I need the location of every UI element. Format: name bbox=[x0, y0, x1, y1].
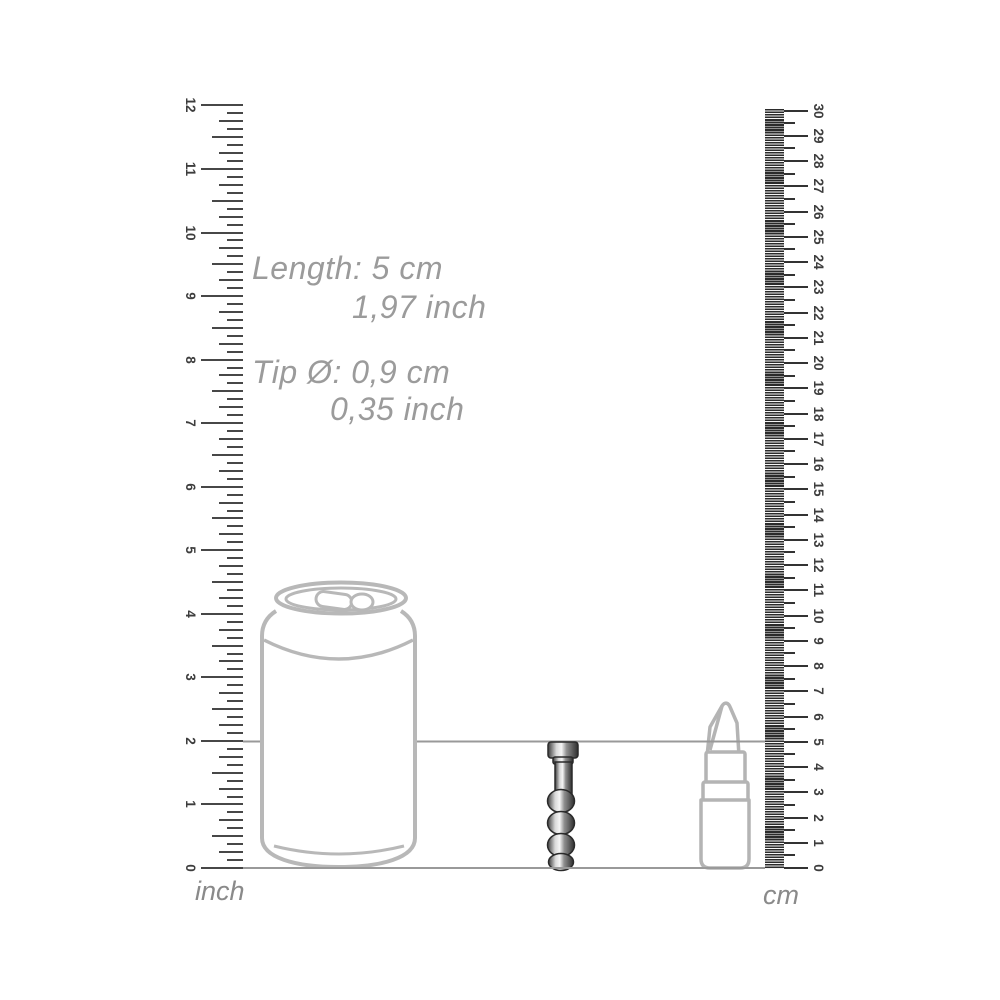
inch-unit-label: inch bbox=[195, 878, 245, 905]
cm-ruler-number: 15 bbox=[806, 477, 830, 501]
inch-ruler-tick bbox=[227, 319, 243, 321]
cm-ruler-tick bbox=[765, 791, 808, 793]
inch-ruler-tick bbox=[227, 382, 243, 384]
cm-ruler-tick bbox=[765, 261, 808, 263]
cm-ruler-tick bbox=[765, 640, 808, 642]
inch-ruler-tick bbox=[201, 613, 243, 615]
inch-ruler-tick bbox=[227, 589, 243, 591]
cm-ruler-tick bbox=[765, 678, 795, 680]
cm-ruler-number: 12 bbox=[806, 553, 830, 577]
cm-ruler-tick bbox=[765, 375, 795, 377]
length-annotation-metric: Length: 5 cm bbox=[252, 252, 443, 284]
cm-ruler-number: 19 bbox=[806, 376, 830, 400]
cm-ruler-tick bbox=[765, 488, 808, 490]
inch-ruler-tick bbox=[227, 700, 243, 702]
inch-ruler-tick bbox=[219, 438, 243, 440]
inch-ruler-tick bbox=[227, 398, 243, 400]
cm-ruler-number: 16 bbox=[806, 452, 830, 476]
cm-ruler-number: 21 bbox=[806, 326, 830, 350]
cm-ruler-tick bbox=[765, 652, 795, 654]
cm-ruler-number: 1 bbox=[806, 831, 830, 855]
cm-ruler-number: 30 bbox=[806, 99, 830, 123]
cm-ruler-number: 13 bbox=[806, 528, 830, 552]
inch-ruler-tick bbox=[212, 136, 243, 138]
cm-ruler-number: 2 bbox=[806, 806, 830, 830]
cm-ruler-tick bbox=[765, 438, 808, 440]
inch-ruler-number: 12 bbox=[178, 93, 202, 117]
inch-ruler-tick bbox=[227, 430, 243, 432]
inch-ruler-tick bbox=[201, 422, 243, 424]
cm-ruler-number: 6 bbox=[806, 705, 830, 729]
inch-ruler-tick bbox=[227, 796, 243, 798]
inch-ruler-tick bbox=[219, 470, 243, 472]
inch-ruler-tick bbox=[227, 414, 243, 416]
size-guide-diagram: 0123456789101112 01234567891011121314151… bbox=[0, 0, 1000, 1000]
inch-ruler-number: 4 bbox=[178, 602, 202, 626]
inch-ruler-tick bbox=[227, 653, 243, 655]
inch-ruler-tick bbox=[212, 835, 243, 837]
inch-ruler-tick bbox=[201, 803, 243, 805]
cm-ruler-tick bbox=[765, 577, 795, 579]
inch-ruler-tick bbox=[227, 637, 243, 639]
inch-ruler-tick bbox=[219, 819, 243, 821]
cm-ruler-tick bbox=[765, 173, 795, 175]
inch-ruler-tick bbox=[219, 406, 243, 408]
inch-ruler-tick bbox=[227, 192, 243, 194]
cm-ruler-tick bbox=[765, 564, 808, 566]
inch-ruler-tick bbox=[227, 716, 243, 718]
inch-ruler-tick bbox=[212, 327, 243, 329]
cm-ruler-number: 26 bbox=[806, 200, 830, 224]
inch-ruler-tick bbox=[227, 827, 243, 829]
cm-ruler-tick bbox=[765, 779, 795, 781]
cm-ruler-number: 20 bbox=[806, 351, 830, 375]
cm-ruler-number: 5 bbox=[806, 730, 830, 754]
cm-ruler-tick bbox=[765, 450, 795, 452]
inch-ruler-number: 6 bbox=[178, 475, 202, 499]
cm-ruler-tick bbox=[765, 817, 808, 819]
can-pull-tab-icon bbox=[315, 591, 373, 611]
inch-ruler-number: 11 bbox=[178, 157, 202, 181]
cm-ruler-tick bbox=[765, 236, 808, 238]
inch-ruler-number: 7 bbox=[178, 411, 202, 435]
inch-ruler-tick bbox=[227, 112, 243, 114]
cm-ruler-number: 18 bbox=[806, 402, 830, 426]
inch-ruler-tick bbox=[212, 645, 243, 647]
inch-ruler-tick bbox=[227, 541, 243, 543]
cm-ruler-tick bbox=[765, 766, 808, 768]
inch-ruler-tick bbox=[219, 247, 243, 249]
cm-ruler-tick bbox=[765, 349, 795, 351]
inch-ruler-tick bbox=[219, 533, 243, 535]
inch-ruler-tick bbox=[227, 684, 243, 686]
inch-ruler-tick bbox=[227, 557, 243, 559]
cm-ruler-tick bbox=[765, 425, 795, 427]
cm-ruler-number: 24 bbox=[806, 250, 830, 274]
cm-ruler-tick bbox=[765, 665, 808, 667]
inch-ruler-tick bbox=[227, 748, 243, 750]
cm-ruler-tick bbox=[765, 324, 795, 326]
inch-ruler-tick bbox=[219, 597, 243, 599]
inch-ruler-tick bbox=[219, 343, 243, 345]
inch-ruler-tick bbox=[212, 708, 243, 710]
cm-ruler-tick bbox=[765, 627, 795, 629]
cm-ruler-tick bbox=[765, 867, 808, 869]
inch-ruler-tick bbox=[227, 271, 243, 273]
inch-ruler-tick bbox=[227, 780, 243, 782]
inch-ruler-tick bbox=[219, 311, 243, 313]
cm-ruler-tick bbox=[765, 211, 808, 213]
inch-ruler-tick bbox=[227, 843, 243, 845]
inch-ruler-number: 5 bbox=[178, 538, 202, 562]
inch-ruler-number: 1 bbox=[178, 792, 202, 816]
inch-ruler-tick bbox=[201, 168, 243, 170]
cm-ruler-number: 22 bbox=[806, 301, 830, 325]
inch-ruler-tick bbox=[227, 446, 243, 448]
cm-ruler-tick bbox=[765, 147, 795, 149]
cm-ruler-tick bbox=[765, 753, 795, 755]
inch-ruler-tick bbox=[227, 176, 243, 178]
inch-ruler-tick bbox=[227, 462, 243, 464]
inch-ruler-tick bbox=[201, 740, 243, 742]
cm-ruler-number: 23 bbox=[806, 275, 830, 299]
inch-ruler-tick bbox=[219, 724, 243, 726]
inch-ruler-tick bbox=[227, 732, 243, 734]
inch-ruler-tick bbox=[227, 160, 243, 162]
cm-ruler-tick bbox=[765, 312, 808, 314]
inch-ruler-tick bbox=[227, 287, 243, 289]
inch-ruler-tick bbox=[219, 629, 243, 631]
cm-ruler-tick bbox=[765, 160, 808, 162]
cm-ruler-tick bbox=[765, 703, 795, 705]
cm-ruler-tick bbox=[765, 829, 795, 831]
inch-ruler-tick bbox=[227, 367, 243, 369]
inch-ruler-tick bbox=[212, 517, 243, 519]
cm-ruler-tick bbox=[765, 501, 795, 503]
inch-ruler-tick bbox=[227, 478, 243, 480]
cm-ruler-tick bbox=[765, 589, 808, 591]
inch-ruler-tick bbox=[219, 374, 243, 376]
soda-can-graphic bbox=[262, 583, 415, 868]
cm-ruler-tick bbox=[765, 286, 808, 288]
inch-ruler: 0123456789101112 bbox=[0, 0, 1000, 1000]
cm-ruler-tick bbox=[765, 690, 808, 692]
inch-ruler-tick bbox=[212, 581, 243, 583]
inch-ruler-tick bbox=[227, 128, 243, 130]
cm-ruler-tick bbox=[765, 185, 808, 187]
cm-ruler-number: 10 bbox=[806, 604, 830, 628]
cm-ruler-tick bbox=[765, 615, 808, 617]
inch-ruler-tick bbox=[219, 660, 243, 662]
inch-ruler-tick bbox=[227, 494, 243, 496]
cm-ruler-tick bbox=[765, 804, 795, 806]
inch-ruler-tick bbox=[201, 359, 243, 361]
inch-ruler-tick bbox=[227, 764, 243, 766]
cm-ruler-tick bbox=[765, 337, 808, 339]
cm-ruler-number: 29 bbox=[806, 124, 830, 148]
inch-ruler-tick bbox=[227, 621, 243, 623]
cm-ruler-tick bbox=[765, 413, 808, 415]
cm-ruler-tick bbox=[765, 223, 795, 225]
cm-ruler-tick bbox=[765, 854, 795, 856]
inch-ruler-tick bbox=[219, 120, 243, 122]
inch-ruler-number: 9 bbox=[178, 284, 202, 308]
inch-ruler-tick bbox=[227, 859, 243, 861]
inch-ruler-number: 3 bbox=[178, 665, 202, 689]
inch-ruler-tick bbox=[227, 144, 243, 146]
inch-ruler-tick bbox=[227, 811, 243, 813]
inch-ruler-tick bbox=[212, 454, 243, 456]
inch-ruler-tick bbox=[212, 263, 243, 265]
cm-ruler-number: 11 bbox=[806, 578, 830, 602]
cm-ruler: 0123456789101112131415161718192021222324… bbox=[0, 0, 1000, 1000]
cm-ruler-number: 14 bbox=[806, 503, 830, 527]
cm-ruler-number: 7 bbox=[806, 679, 830, 703]
cm-ruler-tick bbox=[765, 741, 808, 743]
cm-ruler-tick bbox=[765, 728, 795, 730]
inch-ruler-tick bbox=[227, 224, 243, 226]
cm-ruler-number: 9 bbox=[806, 629, 830, 653]
cm-ruler-number: 0 bbox=[806, 856, 830, 880]
cm-ruler-number: 28 bbox=[806, 149, 830, 173]
inch-ruler-tick bbox=[227, 510, 243, 512]
inch-ruler-tick bbox=[219, 565, 243, 567]
inch-ruler-tick bbox=[201, 549, 243, 551]
metal-plug-graphic bbox=[548, 742, 579, 871]
cm-ruler-tick bbox=[765, 135, 808, 137]
inch-ruler-tick bbox=[227, 335, 243, 337]
cm-ruler-tick bbox=[765, 299, 795, 301]
cm-ruler-tick bbox=[765, 514, 808, 516]
inch-ruler-tick bbox=[212, 772, 243, 774]
inch-ruler-tick bbox=[227, 303, 243, 305]
cm-ruler-tick bbox=[765, 122, 795, 124]
inch-ruler-tick bbox=[219, 788, 243, 790]
inch-ruler-tick bbox=[227, 351, 243, 353]
cm-ruler-tick bbox=[765, 274, 795, 276]
cm-ruler-tick bbox=[765, 842, 808, 844]
cm-ruler-tick bbox=[765, 716, 808, 718]
cm-ruler-number: 25 bbox=[806, 225, 830, 249]
cm-ruler-tick bbox=[765, 539, 808, 541]
cm-ruler-mm-band bbox=[765, 109, 784, 869]
inch-ruler-tick bbox=[227, 573, 243, 575]
inch-ruler-tick bbox=[219, 184, 243, 186]
inch-ruler-tick bbox=[212, 390, 243, 392]
inch-ruler-tick bbox=[201, 486, 243, 488]
inch-ruler-number: 8 bbox=[178, 348, 202, 372]
inch-ruler-tick bbox=[201, 867, 243, 869]
inch-ruler-tick bbox=[219, 756, 243, 758]
inch-ruler-tick bbox=[219, 152, 243, 154]
cm-ruler-tick bbox=[765, 248, 795, 250]
inch-ruler-tick bbox=[219, 851, 243, 853]
lipstick-graphic bbox=[701, 703, 749, 868]
cm-ruler-number: 17 bbox=[806, 427, 830, 451]
cm-ruler-number: 3 bbox=[806, 780, 830, 804]
tip-annotation-metric: Tip Ø: 0,9 cm bbox=[252, 356, 450, 388]
inch-ruler-tick bbox=[219, 692, 243, 694]
inch-ruler-tick bbox=[227, 525, 243, 527]
cm-ruler-tick bbox=[765, 551, 795, 553]
cm-ruler-tick bbox=[765, 400, 795, 402]
inch-ruler-tick bbox=[201, 295, 243, 297]
tip-annotation-imperial: 0,35 inch bbox=[330, 393, 464, 425]
inch-ruler-tick bbox=[227, 668, 243, 670]
cm-ruler-number: 4 bbox=[806, 755, 830, 779]
inch-ruler-tick bbox=[219, 216, 243, 218]
cm-ruler-tick bbox=[765, 526, 795, 528]
inch-ruler-number: 2 bbox=[178, 729, 202, 753]
cm-ruler-tick bbox=[765, 602, 795, 604]
cm-unit-label: cm bbox=[763, 882, 799, 909]
inch-ruler-tick bbox=[219, 279, 243, 281]
inch-ruler-tick bbox=[201, 232, 243, 234]
length-annotation-imperial: 1,97 inch bbox=[352, 291, 486, 323]
scale-drawing bbox=[0, 0, 1000, 1000]
cm-ruler-tick bbox=[765, 476, 795, 478]
cm-ruler-tick bbox=[765, 110, 808, 112]
cm-ruler-number: 27 bbox=[806, 174, 830, 198]
inch-ruler-tick bbox=[227, 239, 243, 241]
cm-ruler-number: 8 bbox=[806, 654, 830, 678]
inch-ruler-tick bbox=[227, 208, 243, 210]
cm-ruler-tick bbox=[765, 362, 808, 364]
inch-ruler-tick bbox=[212, 200, 243, 202]
cm-ruler-tick bbox=[765, 198, 795, 200]
inch-ruler-tick bbox=[201, 104, 243, 106]
cm-ruler-tick bbox=[765, 463, 808, 465]
cm-ruler-tick bbox=[765, 387, 808, 389]
inch-ruler-tick bbox=[227, 605, 243, 607]
inch-ruler-number: 10 bbox=[178, 221, 202, 245]
inch-ruler-tick bbox=[219, 502, 243, 504]
inch-ruler-tick bbox=[201, 676, 243, 678]
inch-ruler-tick bbox=[227, 255, 243, 257]
